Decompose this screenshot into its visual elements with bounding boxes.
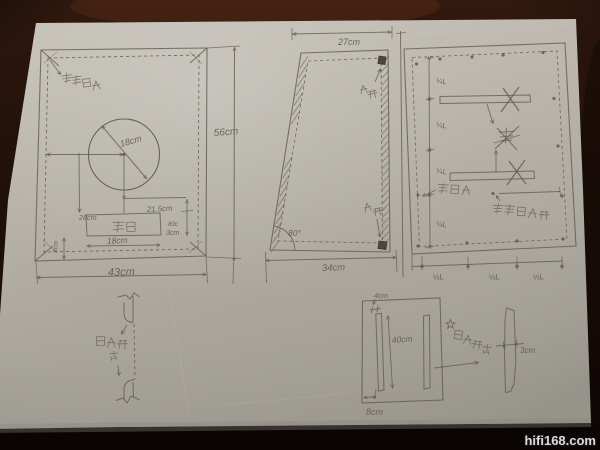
svg-text:40cm: 40cm [391, 334, 412, 345]
svg-text:43cm: 43cm [108, 266, 135, 279]
svg-text:¼L: ¼L [436, 120, 448, 130]
svg-text:8cm: 8cm [366, 407, 384, 417]
svg-text:⅓L: ⅓L [489, 272, 501, 282]
svg-text:⅓L: ⅓L [433, 272, 445, 282]
svg-text:3cm: 3cm [520, 346, 535, 355]
svg-text:80°: 80° [288, 228, 301, 238]
svg-text:¼L: ¼L [436, 219, 448, 229]
svg-text:3cm: 3cm [52, 240, 60, 253]
svg-text:34cm: 34cm [322, 262, 346, 274]
svg-text:80c: 80c [168, 221, 179, 228]
svg-text:27cm: 27cm [337, 37, 361, 47]
svg-text:4cm: 4cm [374, 291, 388, 300]
svg-text:¼L: ¼L [436, 166, 448, 176]
svg-text:¼L: ¼L [436, 76, 448, 86]
svg-text:hifi168.com: hifi168.com [524, 433, 596, 448]
svg-text:18cm: 18cm [107, 235, 128, 246]
svg-text:3cm: 3cm [166, 230, 179, 237]
svg-text:56cm: 56cm [213, 126, 238, 139]
svg-text:21.5cm: 21.5cm [146, 204, 174, 214]
svg-text:⅓L: ⅓L [533, 272, 545, 282]
